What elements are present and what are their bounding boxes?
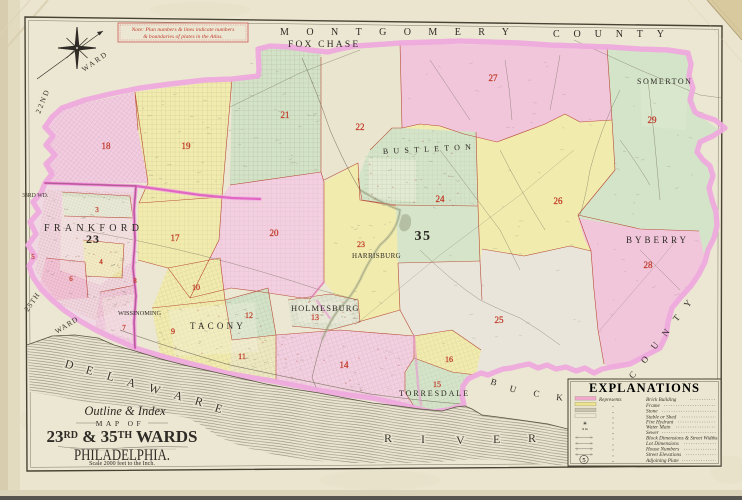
svg-text:HARRISBURG: HARRISBURG (352, 252, 401, 260)
svg-text:25: 25 (495, 315, 505, 325)
svg-text:33RD WD.: 33RD WD. (22, 193, 49, 199)
svg-text:5: 5 (582, 457, 585, 464)
svg-text:16: 16 (445, 355, 453, 364)
svg-text:6 in: 6 in (582, 427, 588, 431)
svg-text:TACONY: TACONY (190, 321, 246, 331)
svg-text:4: 4 (99, 258, 103, 266)
svg-text:12: 12 (245, 311, 253, 320)
svg-text:19: 19 (182, 141, 192, 151)
svg-text:24: 24 (436, 194, 446, 204)
svg-text:EXPLANATIONS: EXPLANATIONS (589, 381, 699, 395)
svg-text:9: 9 (171, 327, 175, 336)
svg-text:& boundaries of plates in the: & boundaries of plates in the Atlas. (143, 33, 223, 40)
svg-text:14: 14 (340, 360, 350, 370)
svg-text:23: 23 (86, 232, 100, 246)
svg-text:I: I (421, 432, 425, 446)
svg-text:8: 8 (133, 277, 137, 285)
svg-text:HOLMESBURG: HOLMESBURG (291, 303, 360, 313)
svg-text:28: 28 (644, 260, 654, 270)
svg-text:26: 26 (554, 196, 564, 206)
svg-text:27: 27 (489, 73, 499, 83)
svg-text:7: 7 (122, 324, 126, 332)
svg-text:35: 35 (415, 229, 432, 244)
svg-text:R: R (384, 431, 392, 445)
svg-text:3: 3 (95, 206, 99, 214)
svg-text:FOX CHASE: FOX CHASE (288, 40, 360, 50)
svg-text:23: 23 (357, 240, 365, 249)
svg-text:20: 20 (270, 228, 280, 238)
svg-text:SOMERTON: SOMERTON (637, 77, 692, 86)
svg-text:TORRESDALE: TORRESDALE (399, 389, 470, 398)
svg-text:Adjoining Plate: Adjoining Plate (645, 458, 679, 464)
svg-text:15: 15 (433, 380, 441, 389)
svg-text:13: 13 (311, 313, 319, 322)
svg-text:5: 5 (31, 253, 35, 261)
svg-text:BYBERRY: BYBERRY (626, 235, 689, 245)
svg-text:WISSINOMING: WISSINOMING (118, 310, 161, 317)
svg-text:21: 21 (281, 110, 290, 120)
svg-text:6: 6 (69, 275, 73, 283)
svg-text:18: 18 (102, 141, 112, 151)
svg-text:22: 22 (356, 122, 365, 132)
svg-text:11: 11 (238, 352, 246, 361)
svg-text:R: R (528, 431, 536, 445)
svg-text:Scale 2000 feet to the Inch.: Scale 2000 feet to the Inch. (89, 460, 155, 467)
svg-text:17: 17 (171, 233, 181, 243)
svg-text:29: 29 (648, 115, 658, 125)
svg-text:Represents: Represents (598, 397, 622, 403)
svg-text:10: 10 (192, 283, 200, 292)
svg-text:E: E (493, 432, 500, 446)
svg-text:Outline & Index: Outline & Index (84, 404, 166, 418)
svg-text:Note: Plan numbers & lines ind: Note: Plan numbers & lines indicate numb… (131, 27, 235, 33)
svg-text:V: V (456, 433, 465, 447)
